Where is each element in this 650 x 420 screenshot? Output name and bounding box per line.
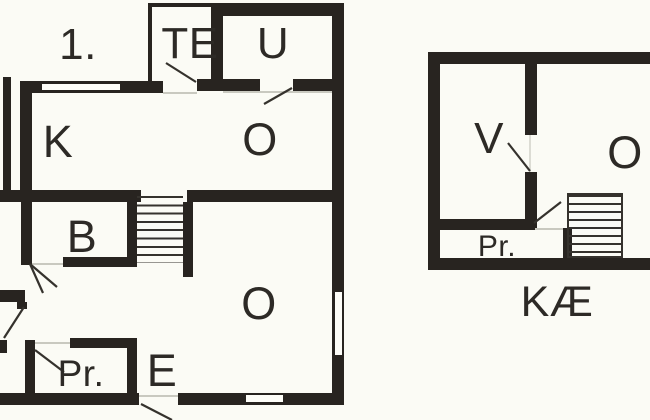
wall-basement-left <box>428 64 440 270</box>
room-label-o-basement: O <box>607 130 643 175</box>
wall-left-edge-fragment <box>3 77 11 193</box>
room-label-b: B <box>67 214 98 259</box>
wall-te-bottom-stub <box>197 79 260 91</box>
room-label-pr-basement: Pr. <box>478 232 516 262</box>
room-label-v: V <box>474 117 504 161</box>
door-swing-b-2 <box>30 264 43 293</box>
threshold-pr-door <box>35 342 70 344</box>
wall-b-left <box>21 202 32 265</box>
wall-mid-right <box>187 190 344 202</box>
wall-left-stub-a-ext <box>17 302 27 309</box>
threshold-basement-stairs <box>535 228 563 230</box>
wall-stairs-left <box>127 202 137 267</box>
wall-basement-pr-top <box>440 219 537 230</box>
wall-bottom-left-segment <box>0 393 139 405</box>
floor-label-basement: KÆ <box>521 281 594 324</box>
room-label-pr: Pr. <box>58 355 105 392</box>
room-label-te: TE <box>161 22 218 66</box>
window-bottom <box>246 395 283 402</box>
window-k-top <box>42 84 120 90</box>
room-label-k: K <box>43 119 74 164</box>
door-swing-basement-stairs <box>534 202 561 223</box>
wall-te-left-thin <box>148 3 152 83</box>
wall-basement-top <box>428 52 650 64</box>
floor-label-1: 1. <box>59 23 97 67</box>
wall-k-left <box>20 81 32 202</box>
wall-basement-bottom <box>428 258 650 270</box>
floorplan-canvas: 1. TE U K O B O Pr. E V O Pr. KÆ <box>0 0 650 420</box>
room-label-u: U <box>257 22 289 66</box>
staircase-basement <box>567 193 623 258</box>
room-label-o-top: O <box>242 117 278 162</box>
wall-left-stub-a <box>0 290 25 302</box>
wall-te-top-thin <box>148 3 214 7</box>
threshold-b-door <box>32 263 63 265</box>
door-swing-v <box>508 143 530 171</box>
threshold-te-door <box>163 92 197 94</box>
wall-u-bottom-stub <box>293 79 344 91</box>
staircase-floor1 <box>137 196 183 263</box>
wall-u-top <box>211 3 344 16</box>
wall-mid-left <box>0 190 141 202</box>
room-label-o-main: O <box>241 281 277 326</box>
wall-v-upper <box>525 64 537 135</box>
door-swing-b-1 <box>30 264 57 287</box>
door-swing-left-room <box>4 307 24 338</box>
wall-left-stub-b <box>0 340 7 353</box>
room-label-e: E <box>147 348 178 393</box>
door-swing-entry <box>141 404 172 420</box>
window-o-right <box>335 292 342 355</box>
threshold-v-door <box>529 135 531 172</box>
wall-stairs-right <box>183 202 193 277</box>
threshold-u-bottom <box>223 91 332 93</box>
